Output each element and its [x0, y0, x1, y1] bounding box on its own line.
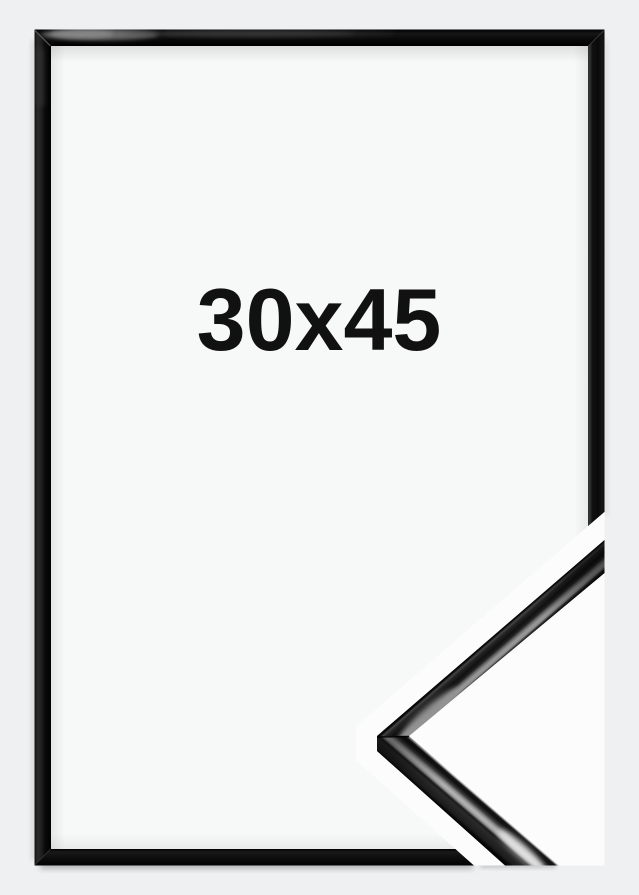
svg-text:30x45: 30x45: [197, 270, 442, 369]
